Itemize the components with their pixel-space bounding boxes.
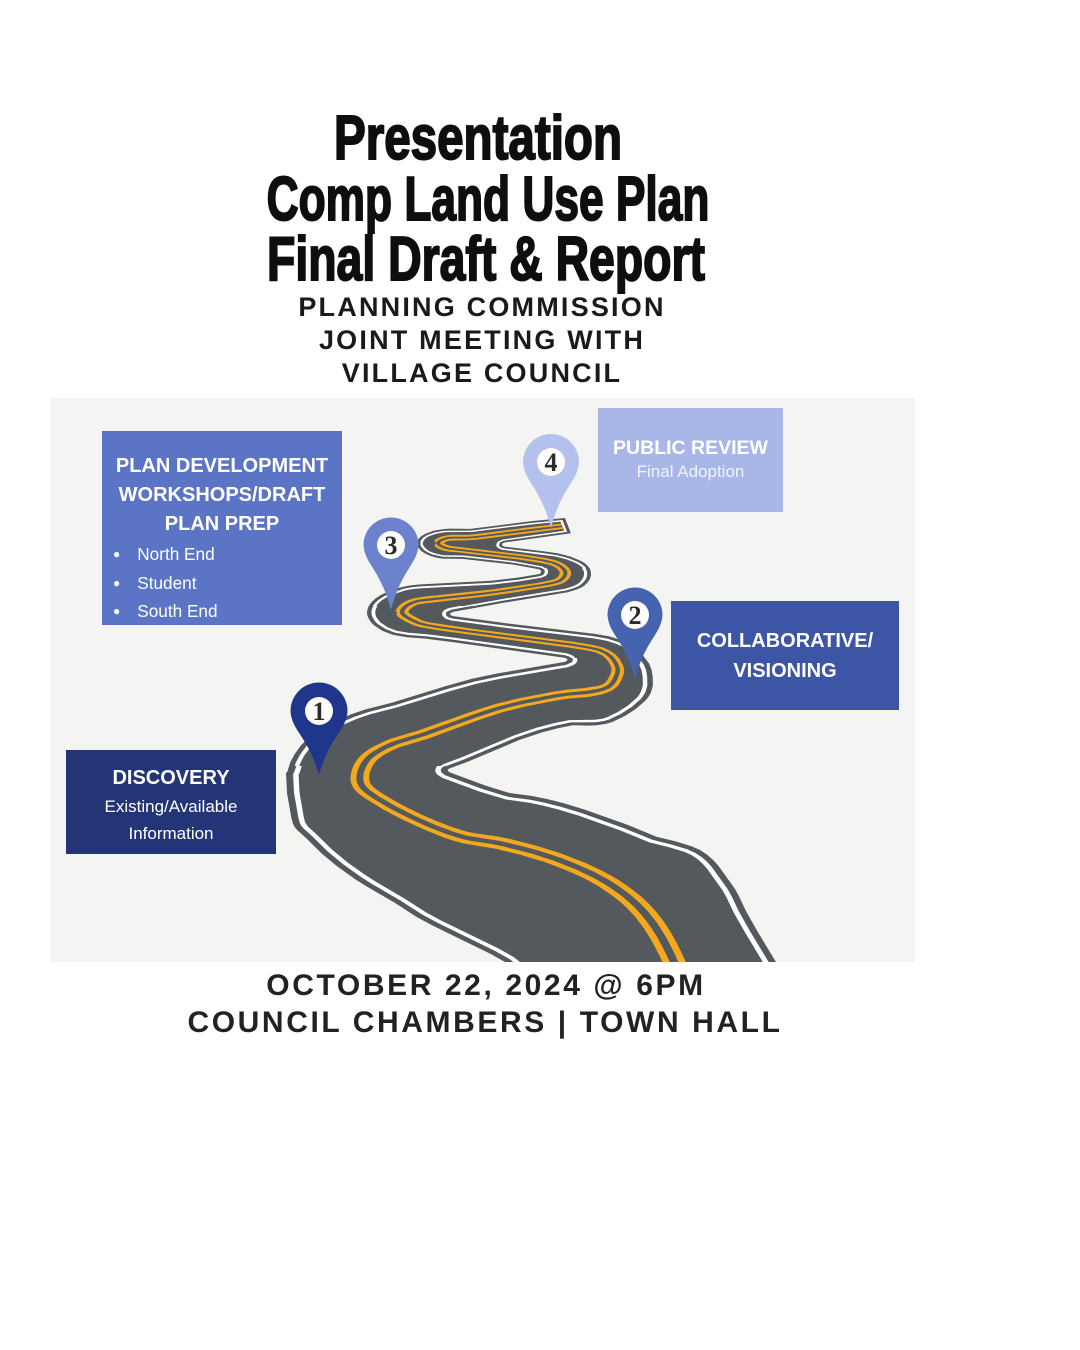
svg-text:4: 4	[545, 448, 558, 477]
svg-text:1: 1	[313, 697, 326, 726]
svg-text:2: 2	[629, 601, 642, 630]
svg-text:3: 3	[385, 531, 398, 560]
